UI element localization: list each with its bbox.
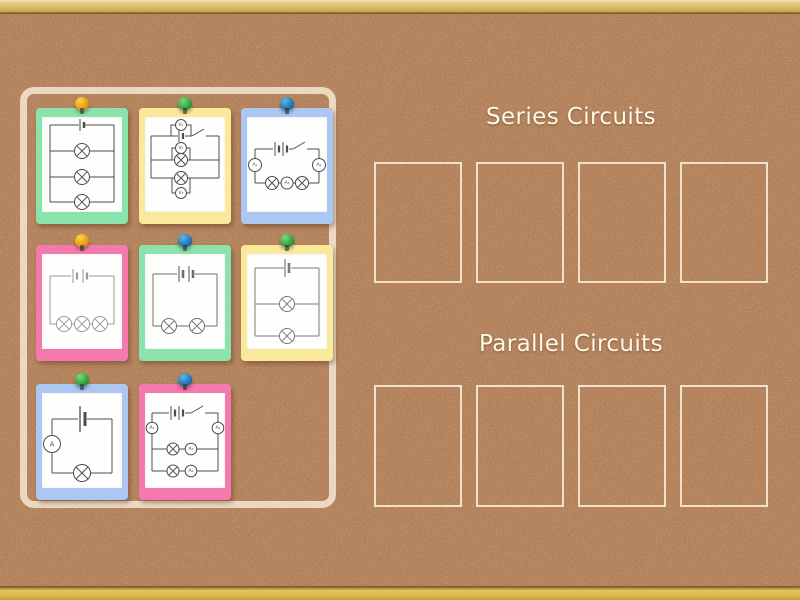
card-paper: A <box>42 393 122 488</box>
drop-slot-parallel-2[interactable] <box>476 385 564 507</box>
ammeter-label: A <box>50 440 55 448</box>
circuit-diagram-parallel-2-lamps <box>247 254 327 349</box>
wooden-frame-top <box>0 0 800 14</box>
voltmeter-1-label: V₁ <box>179 122 184 128</box>
circuit-diagram-series-ammeters: A₁ A₂ A₃ <box>247 117 327 212</box>
group-sort-board: Series Circuits Parallel Circuits <box>0 0 800 600</box>
drop-slot-series-2[interactable] <box>476 162 564 283</box>
card-parallel-2-lamps-voltmeters[interactable]: V₁ V₂ V₃ <box>139 108 231 224</box>
push-pin-orange <box>75 97 89 110</box>
ammeter-3-label: A₃ <box>285 180 290 186</box>
parallel-drop-area <box>374 385 768 507</box>
push-pin-blue <box>178 234 192 247</box>
parallel-group-title: Parallel Circuits <box>374 331 768 357</box>
push-pin-blue <box>178 373 192 386</box>
ammeter-2-label: A₂ <box>216 425 221 431</box>
card-paper: A₁ A₂ A₃ A₄ <box>145 393 225 488</box>
push-pin-green <box>75 373 89 386</box>
card-paper <box>42 117 122 212</box>
card-paper <box>42 254 122 349</box>
drop-slot-parallel-4[interactable] <box>680 385 768 507</box>
ammeter-4-label: A₄ <box>189 468 194 474</box>
push-pin-green <box>280 234 294 247</box>
card-paper: V₁ V₂ V₃ <box>145 117 225 212</box>
card-series-3-lamps[interactable] <box>36 245 128 361</box>
wooden-frame-bottom <box>0 586 800 600</box>
card-parallel-2-lamps[interactable] <box>241 245 333 361</box>
card-parallel-2-lamps-ammeters[interactable]: A₁ A₂ A₃ A₄ <box>139 384 231 500</box>
circuit-diagram-series-2-lamps <box>145 254 225 349</box>
ammeter-1-label: A₁ <box>150 425 155 431</box>
card-series-2-lamps[interactable] <box>139 245 231 361</box>
card-series-lamp-ammeter[interactable]: A <box>36 384 128 500</box>
series-drop-area <box>374 162 768 283</box>
push-pin-green <box>178 97 192 110</box>
voltmeter-2-label: V₂ <box>179 145 184 151</box>
circuit-diagram-series-ammeter: A <box>42 393 122 488</box>
drop-slot-series-4[interactable] <box>680 162 768 283</box>
card-parallel-3-lamps[interactable] <box>36 108 128 224</box>
push-pin-blue <box>280 97 294 110</box>
drop-slot-series-3[interactable] <box>578 162 666 283</box>
card-paper: A₁ A₂ A₃ <box>247 117 327 212</box>
ammeter-1-label: A₁ <box>253 162 258 168</box>
voltmeter-3-label: V₃ <box>179 190 184 196</box>
ammeter-3-label: A₃ <box>189 446 194 452</box>
drop-slot-series-1[interactable] <box>374 162 462 283</box>
series-group-title: Series Circuits <box>374 104 768 130</box>
drop-slot-parallel-1[interactable] <box>374 385 462 507</box>
ammeter-2-label: A₂ <box>317 162 322 168</box>
card-series-2-lamps-ammeters[interactable]: A₁ A₂ A₃ <box>241 108 333 224</box>
circuit-diagram-parallel-3-lamps <box>42 117 122 212</box>
circuit-diagram-series-3-lamps <box>42 254 122 349</box>
card-paper <box>247 254 327 349</box>
circuit-diagram-parallel-ammeters: A₁ A₂ A₃ A₄ <box>145 393 225 488</box>
card-paper <box>145 254 225 349</box>
push-pin-orange <box>75 234 89 247</box>
circuit-diagram-parallel-voltmeters: V₁ V₂ V₃ <box>145 117 225 212</box>
drop-slot-parallel-3[interactable] <box>578 385 666 507</box>
